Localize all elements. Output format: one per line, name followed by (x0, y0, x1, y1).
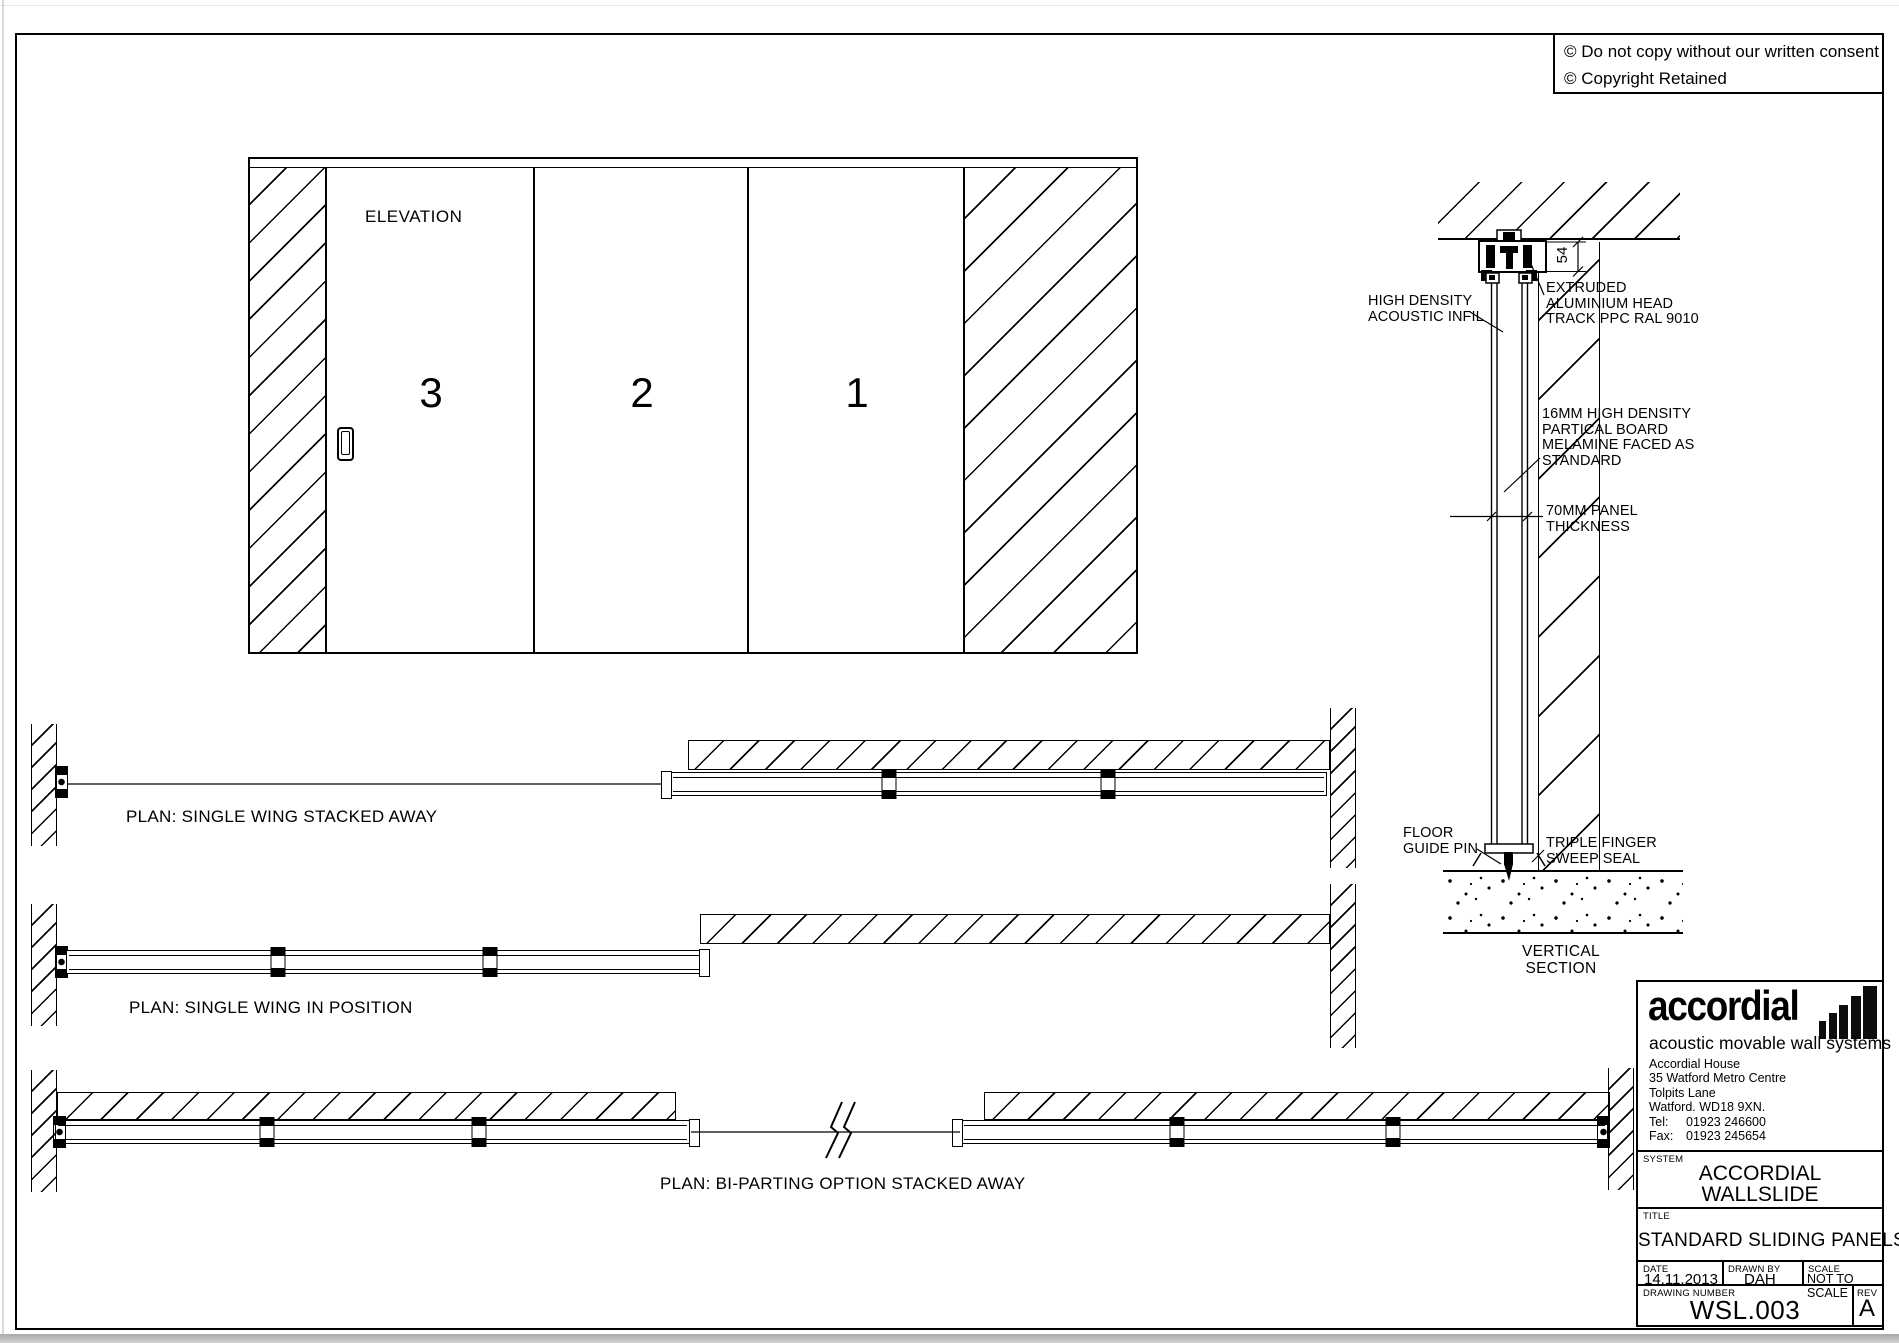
plan2-label: PLAN: SINGLE WING IN POSITION (129, 998, 413, 1018)
plan1-label: PLAN: SINGLE WING STACKED AWAY (126, 807, 437, 827)
panel-joint (882, 769, 897, 799)
panel-joint (260, 1117, 275, 1147)
drawing-sheet: © Do not copy without our written consen… (0, 0, 1899, 1343)
note-board: 16MM HIGH DENSITY PARTICAL BOARD MELAMIN… (1542, 407, 1694, 469)
plan1-right-wall (1330, 708, 1356, 868)
note-floor-pin: FLOOR GUIDE PIN (1403, 826, 1478, 857)
title-block-header: accordial acoustic movable wall systems … (1638, 982, 1882, 1150)
plan3-wall-post (53, 1116, 66, 1148)
plan2-soffit-hatch (700, 914, 1330, 944)
panel-endcap (689, 1119, 700, 1147)
plan2-panels-in-position (66, 950, 702, 974)
plan2-right-wall (1330, 884, 1356, 1048)
panel-endcap (661, 771, 672, 799)
panel-endcap (699, 949, 710, 977)
accordial-logo-text: accordial (1648, 982, 1798, 1030)
note-thickness: 70MM PANEL THICKNESS (1546, 504, 1638, 535)
title-label: TITLE (1643, 1211, 1670, 1222)
drawing-title: STANDARD SLIDING PANELS (1638, 1230, 1882, 1252)
panel-joint (472, 1117, 487, 1147)
copyright-box: © Do not copy without our written consen… (1553, 33, 1884, 94)
panel-joint (1170, 1117, 1185, 1147)
elevation-panel-number: 2 (630, 369, 653, 417)
elevation-panel-divider (747, 167, 749, 652)
section-ceiling-hatch (1438, 182, 1680, 240)
drawing-number-value: WSL.003 (1638, 1295, 1852, 1326)
plan3-right-wall (1608, 1068, 1634, 1190)
plan1-soffit-hatch (688, 740, 1330, 770)
plan3-left-stack (55, 1120, 690, 1144)
plan1-left-wall (31, 724, 57, 846)
plan-panel (670, 772, 889, 796)
elevation-panel-divider (533, 167, 535, 652)
info-row: DATE DRAWN BY SCALE 14.11.2013 DAH NOT T… (1638, 1260, 1882, 1286)
plan-panel (490, 950, 702, 974)
scan-edge-top (0, 5, 1899, 6)
plan3-right-soffit-hatch (984, 1092, 1610, 1120)
plan-panel (479, 1120, 690, 1144)
panel-endcap (952, 1119, 963, 1147)
panel-joint (1386, 1117, 1401, 1147)
plan-panel (1177, 1120, 1393, 1144)
plan3-right-stack (961, 1120, 1608, 1144)
plan-panel (66, 950, 278, 974)
note-acoustic-infil: HIGH DENSITY ACOUSTIC INFIL (1368, 294, 1484, 325)
title-row: TITLE STANDARD SLIDING PANELS (1638, 1207, 1882, 1260)
plan-panel (1108, 772, 1327, 796)
plan-panel (278, 950, 490, 974)
plan-panel (55, 1120, 267, 1144)
plan3-left-soffit-hatch (57, 1092, 676, 1120)
panel-handle (337, 427, 354, 461)
copyright-icon: © (1564, 69, 1577, 88)
note-sweep-seal: TRIPLE FINGER SWEEP SEAL (1546, 836, 1657, 867)
phone-row: Tel:01923 246600 (1649, 1115, 1786, 1129)
note-head-track: EXTRUDED ALUMINIUM HEAD TRACK PPC RAL 90… (1546, 281, 1699, 328)
elevation-panel-number: 1 (845, 369, 868, 417)
company-address: Accordial House 35 Watford Metro Centre … (1649, 1057, 1786, 1143)
scan-edge-bottom (0, 1334, 1899, 1343)
copyright-line-1: © Do not copy without our written consen… (1564, 38, 1882, 65)
plan-panel (889, 772, 1108, 796)
plan3-label: PLAN: BI-PARTING OPTION STACKED AWAY (660, 1174, 1025, 1194)
scan-edge-left (2, 0, 4, 1343)
tagline: acoustic movable wall systems (1649, 1033, 1891, 1054)
vertical-section-caption: VERTICAL SECTION (1518, 943, 1604, 977)
title-block: accordial acoustic movable wall systems … (1636, 980, 1884, 1327)
section-wall-hatch (1538, 242, 1600, 870)
plan1-wall-post (55, 766, 68, 798)
plan-panel (1393, 1120, 1608, 1144)
copyright-icon: © (1564, 42, 1577, 61)
panel-joint (483, 947, 498, 977)
elevation-left-wall-hatch (250, 167, 327, 654)
elevation-view: ELEVATION 3 2 1 (248, 157, 1138, 654)
head-dimension-54: 54 (1554, 242, 1570, 268)
elevation-label: ELEVATION (365, 207, 462, 227)
fax-row: Fax:01923 245654 (1649, 1129, 1786, 1143)
plan2-left-wall (31, 904, 57, 1026)
plan-panel (267, 1120, 479, 1144)
plan-panel (961, 1120, 1177, 1144)
rev-value: A (1852, 1295, 1882, 1323)
system-row: SYSTEM ACCORDIAL WALLSLIDE (1638, 1150, 1882, 1207)
plan1-stacked-panels (670, 772, 1327, 796)
number-row: DRAWING NUMBER REV WSL.003 A (1638, 1284, 1882, 1327)
panel-joint (271, 947, 286, 977)
accordial-logo-bars-icon (1819, 986, 1877, 1039)
elevation-right-wall-hatch (963, 167, 1136, 654)
panel-joint (1101, 769, 1116, 799)
elevation-panel-number: 3 (419, 369, 442, 417)
system-value: ACCORDIAL WALLSLIDE (1638, 1163, 1882, 1205)
section-floor-concrete (1443, 870, 1683, 934)
copyright-line-2: © Copyright Retained (1564, 65, 1882, 92)
